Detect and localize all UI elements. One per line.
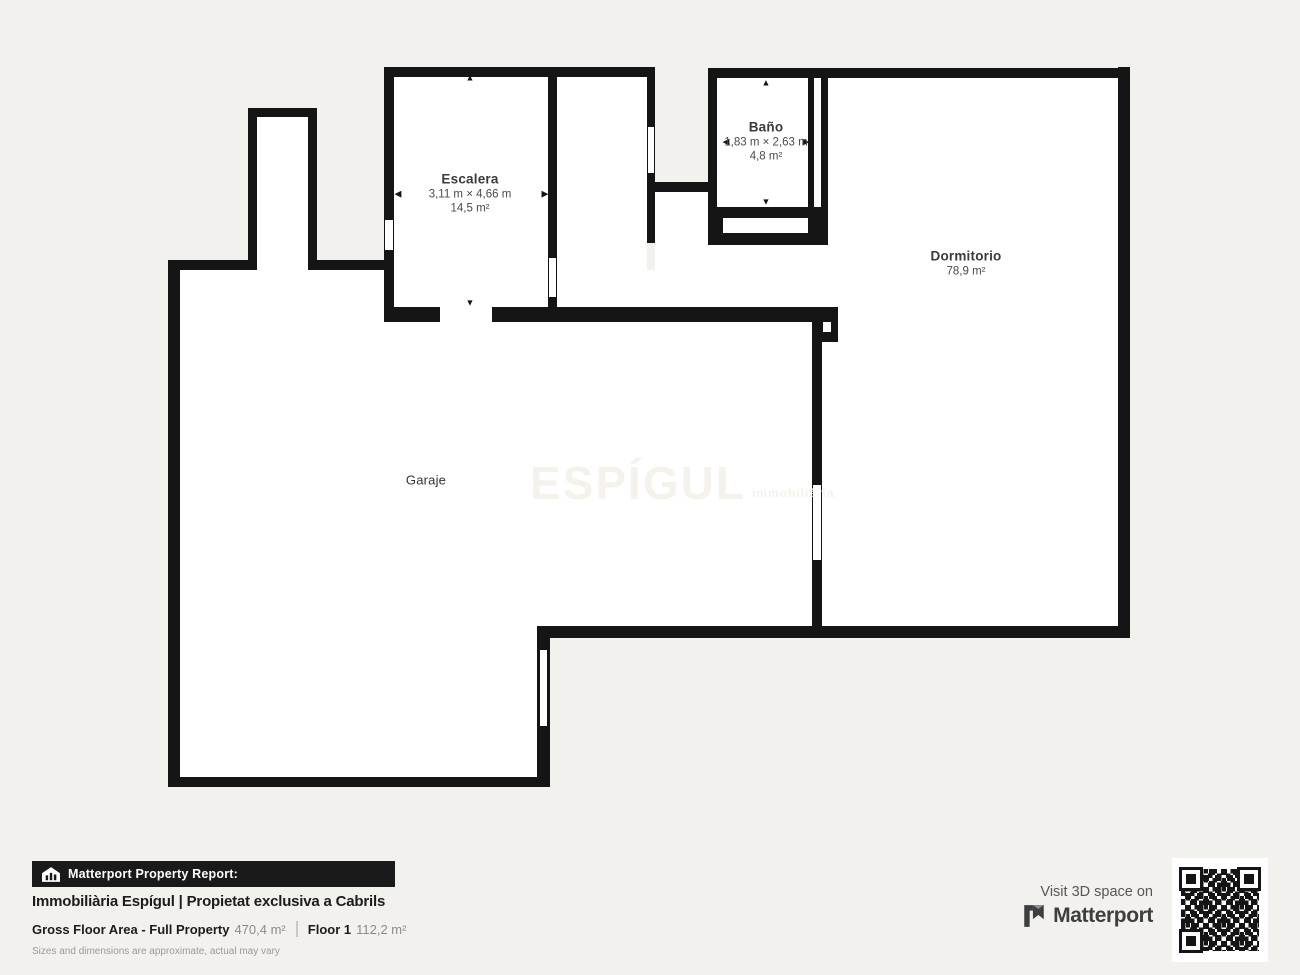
- wall: [168, 260, 248, 270]
- qr-pattern: [1181, 869, 1259, 951]
- wall: [1118, 67, 1130, 638]
- wall: [812, 626, 1130, 638]
- property-title: Immobiliària Espígul | Propietat exclusi…: [32, 893, 385, 910]
- window-opening: [540, 650, 547, 726]
- report-badge-bar: Matterport Property Report:: [32, 861, 395, 887]
- door-threshold: [723, 218, 808, 233]
- divider: [296, 921, 298, 937]
- matterport-logo: Matterport: [1021, 903, 1153, 929]
- room-dormitorio-floor: [822, 78, 1118, 627]
- dim-arrow-up-icon: ▲: [466, 74, 475, 83]
- visit-3d-text: Visit 3D space on: [1040, 884, 1153, 900]
- room-label-bano: Baño 1,83 m × 2,63 m 4,8 m²: [724, 120, 807, 163]
- wall: [537, 626, 822, 638]
- door-opening: [440, 307, 492, 322]
- dim-arrow-up-icon: ▲: [762, 79, 771, 88]
- wall: [647, 182, 717, 192]
- room-area: 78,9 m²: [931, 266, 1002, 278]
- area-summary: Gross Floor Area - Full Property 470,4 m…: [32, 921, 406, 937]
- room-area: 4,8 m²: [724, 151, 807, 163]
- floor-plan-report: ESPÍGUL immobiliària ▲ ▼ ◀ ▶ ▲ ▼ ◀ ▶ Esc…: [0, 0, 1300, 975]
- matterport-wordmark: Matterport: [1053, 904, 1153, 928]
- wall: [812, 308, 822, 627]
- room-dimensions: 3,11 m × 4,66 m: [429, 189, 512, 201]
- wall: [168, 777, 550, 787]
- room-garaje-floor-lower: [180, 270, 540, 777]
- gfa-value: 470,4 m²: [234, 922, 285, 937]
- room-name: Garaje: [406, 473, 446, 488]
- door-opening: [549, 258, 556, 297]
- wall: [808, 218, 828, 233]
- wall: [708, 68, 717, 245]
- room-area: 14,5 m²: [429, 203, 512, 215]
- room-dimensions: 1,83 m × 2,63 m: [724, 137, 807, 149]
- qr-finder-icon: [1237, 867, 1261, 891]
- wall: [384, 67, 394, 318]
- qr-finder-icon: [1179, 929, 1203, 953]
- door-opening: [814, 78, 821, 207]
- wall: [708, 207, 821, 218]
- room-name: Dormitorio: [931, 249, 1002, 264]
- room-label-escalera: Escalera 3,11 m × 4,66 m 14,5 m²: [429, 172, 512, 215]
- report-badge-label: Matterport Property Report:: [68, 867, 238, 881]
- floor-value: 112,2 m²: [356, 922, 406, 937]
- room-label-dormitorio: Dormitorio 78,9 m²: [931, 249, 1002, 278]
- window-opening: [385, 220, 393, 250]
- dim-arrow-down-icon: ▼: [762, 198, 771, 207]
- wall: [248, 108, 317, 117]
- dim-arrow-right-icon: ▶: [542, 190, 549, 199]
- qr-finder-icon: [1179, 867, 1203, 891]
- wall: [248, 108, 257, 270]
- floor-label: Floor 1: [308, 922, 351, 937]
- qr-code: [1172, 858, 1268, 962]
- disclaimer-text: Sizes and dimensions are approximate, ac…: [32, 946, 280, 957]
- window-opening: [648, 127, 654, 173]
- room-name: Escalera: [429, 172, 512, 187]
- room-chimney-nook-floor: [257, 117, 308, 277]
- room-label-garaje: Garaje: [406, 473, 446, 488]
- matterport-m-icon: [1021, 903, 1047, 929]
- wall: [308, 260, 393, 270]
- wall: [708, 233, 828, 245]
- wall: [308, 108, 317, 270]
- dim-arrow-left-icon: ◀: [395, 190, 402, 199]
- wall: [708, 68, 1130, 78]
- wall: [168, 260, 180, 787]
- house-report-icon: [42, 867, 60, 882]
- room-name: Baño: [724, 120, 807, 135]
- wall-notch: [823, 322, 831, 332]
- wall: [384, 67, 655, 77]
- gfa-label: Gross Floor Area - Full Property: [32, 922, 229, 937]
- dim-arrow-down-icon: ▼: [466, 299, 475, 308]
- window-opening: [813, 485, 821, 560]
